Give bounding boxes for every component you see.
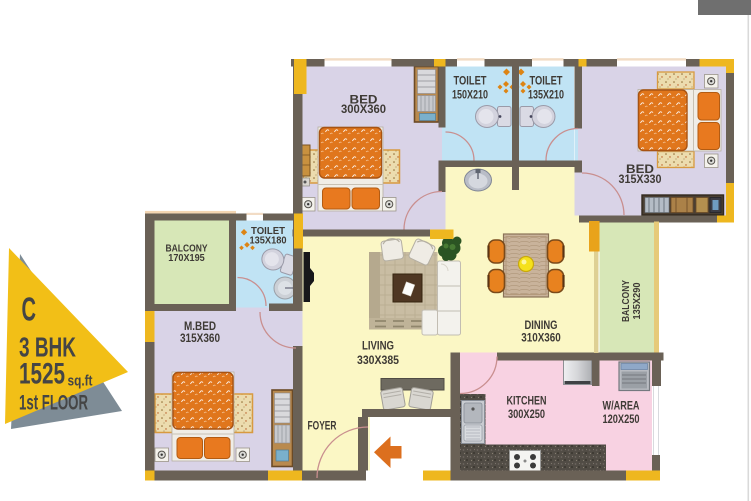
svg-text:150X210: 150X210 [452, 90, 488, 102]
svg-text:KITCHEN: KITCHEN [507, 396, 547, 408]
svg-text:M.BED: M.BED [184, 321, 216, 333]
svg-text:310X360: 310X360 [521, 333, 561, 345]
svg-text:DINING: DINING [525, 320, 558, 332]
svg-text:TOILET: TOILET [454, 76, 487, 88]
svg-text:330X385: 330X385 [357, 355, 400, 367]
svg-text:315X330: 315X330 [619, 174, 662, 186]
svg-text:170X195: 170X195 [168, 252, 205, 264]
svg-text:LIVING: LIVING [362, 340, 394, 352]
svg-text:300X250: 300X250 [508, 409, 545, 421]
svg-text:1525: 1525 [19, 358, 65, 391]
svg-text:135X290: 135X290 [631, 282, 643, 319]
svg-text:TOILET: TOILET [530, 76, 563, 88]
svg-text:300X360: 300X360 [341, 104, 386, 116]
svg-text:135X180: 135X180 [250, 234, 287, 246]
svg-text:C: C [22, 291, 37, 328]
svg-text:FOYER: FOYER [308, 421, 338, 433]
svg-text:W/AREA: W/AREA [603, 401, 640, 413]
svg-text:315X360: 315X360 [180, 333, 220, 345]
svg-text:135X210: 135X210 [528, 90, 564, 102]
svg-text:sq.ft: sq.ft [68, 374, 93, 390]
svg-text:1st FLOOR: 1st FLOOR [19, 391, 88, 415]
svg-text:120X250: 120X250 [603, 414, 640, 426]
